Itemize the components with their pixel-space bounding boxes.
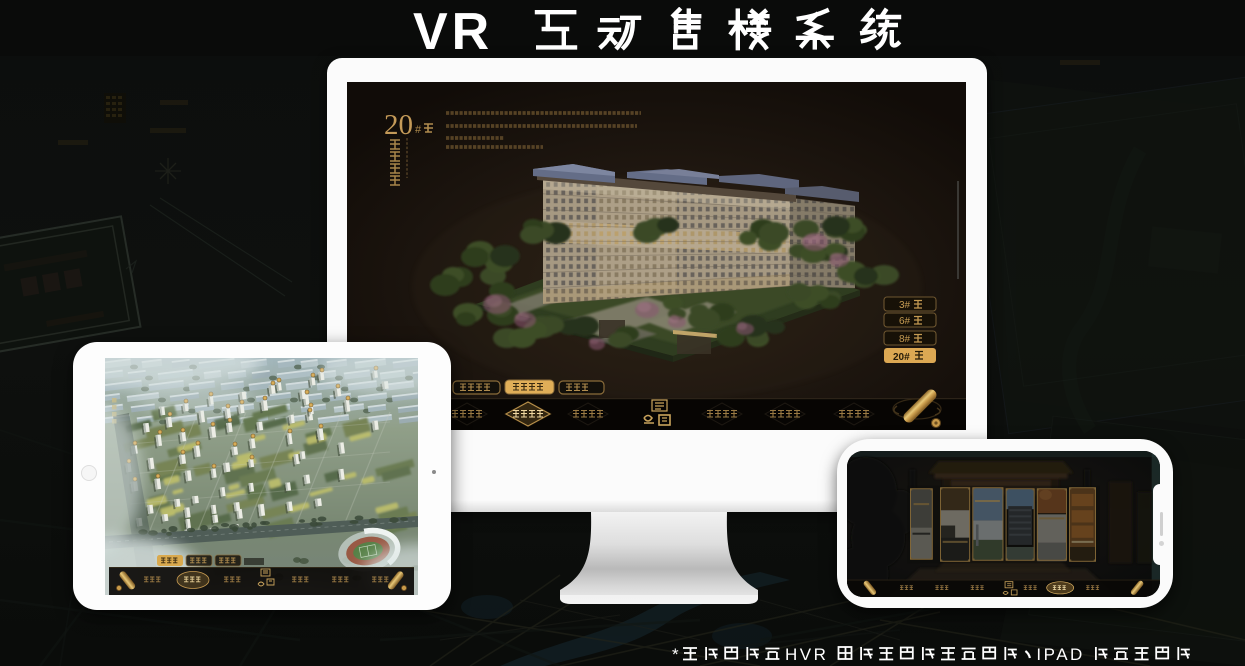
svg-text:3#: 3# — [899, 300, 911, 311]
svg-text:#: # — [415, 124, 422, 136]
svg-text:6#: 6# — [899, 316, 911, 327]
svg-text:*: * — [672, 645, 681, 664]
svg-text:HVR: HVR — [785, 645, 828, 664]
svg-text:IPAD: IPAD — [1036, 645, 1084, 664]
svg-text:20: 20 — [384, 109, 413, 141]
svg-text:8#: 8# — [899, 334, 911, 345]
svg-text:20#: 20# — [893, 352, 910, 363]
